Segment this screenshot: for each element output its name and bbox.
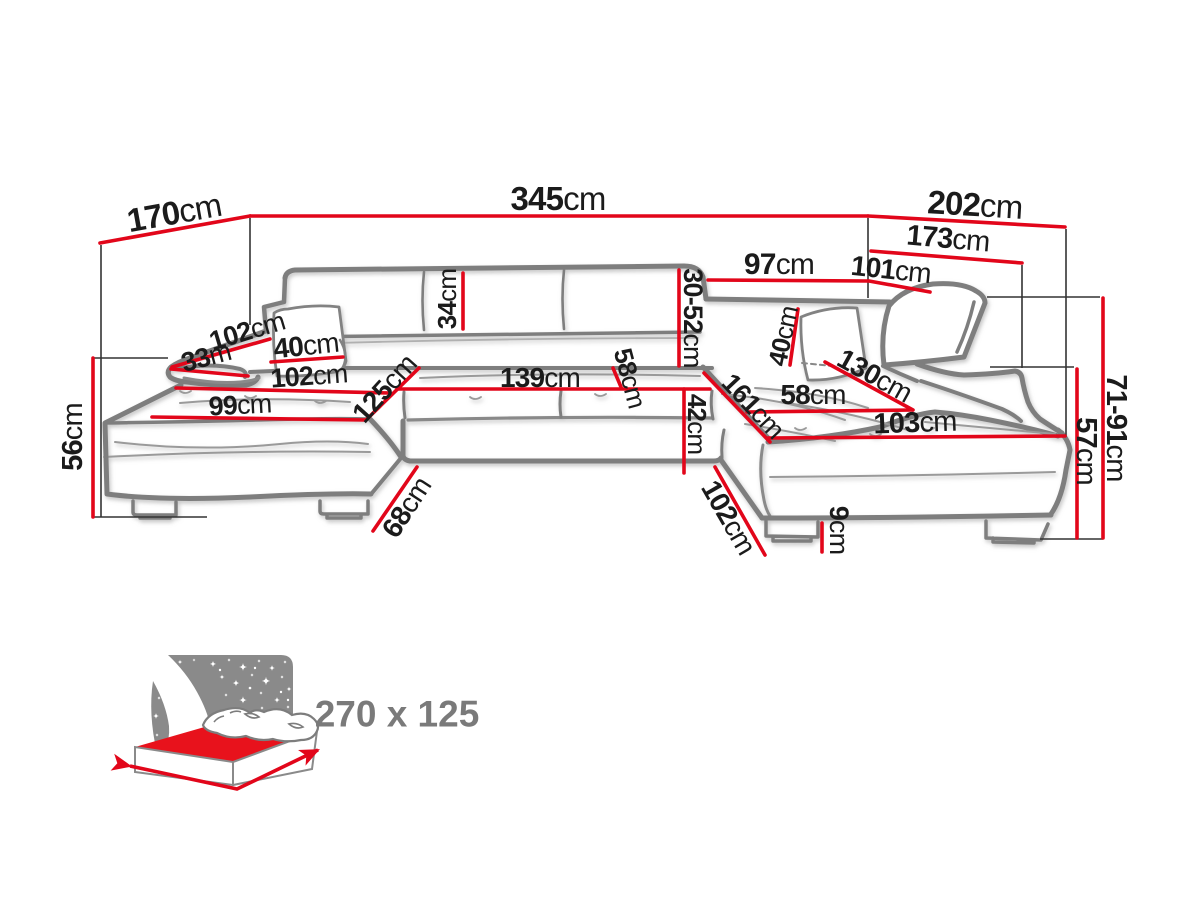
svg-text:173cm: 173cm [905,219,991,258]
svg-text:58cm: 58cm [780,379,845,410]
svg-text:103cm: 103cm [873,406,957,441]
svg-text:57cm: 57cm [1070,417,1102,485]
svg-text:34cm: 34cm [432,269,462,329]
svg-text:161cm: 161cm [716,368,790,445]
svg-text:30-52cm: 30-52cm [678,268,708,367]
svg-text:9cm: 9cm [824,506,854,555]
svg-text:345cm: 345cm [510,180,605,217]
svg-text:139cm: 139cm [500,362,580,393]
svg-text:42cm: 42cm [682,394,712,454]
svg-text:71-91cm: 71-91cm [1100,374,1132,481]
svg-text:56cm: 56cm [57,403,89,471]
svg-text:58cm: 58cm [608,345,653,411]
svg-text:97cm: 97cm [744,248,814,281]
svg-text:33m: 33m [178,336,234,378]
svg-text:40cm: 40cm [762,303,804,368]
svg-text:102cm: 102cm [696,475,763,560]
svg-text:68cm: 68cm [375,471,437,543]
svg-text:99cm: 99cm [208,388,272,421]
svg-text:202cm: 202cm [926,183,1023,226]
svg-text:270 x 125: 270 x 125 [315,694,480,735]
svg-text:170cm: 170cm [124,185,224,238]
svg-text:102cm: 102cm [270,358,349,393]
